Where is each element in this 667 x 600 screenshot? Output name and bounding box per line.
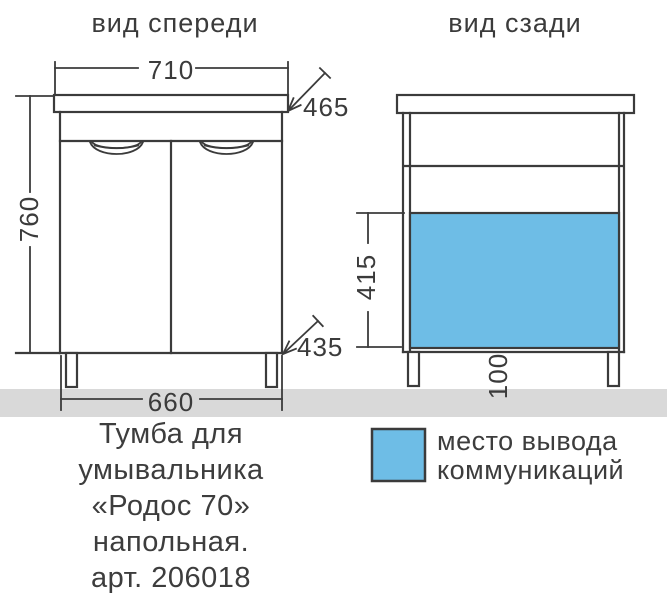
product-caption: Тумба для умывальника «Родос 70» напольн…	[30, 416, 312, 596]
back-countertop	[397, 95, 634, 113]
floor-band	[0, 389, 667, 417]
door-left-handle-icon	[90, 142, 143, 154]
caption-line: умывальника	[30, 452, 312, 488]
back-view-title: вид сзади	[400, 8, 630, 39]
front-view-title: вид спереди	[60, 8, 290, 39]
door-right-handle-icon	[200, 142, 253, 154]
caption-line: Тумба для	[30, 416, 312, 452]
front-countertop	[54, 95, 288, 112]
product-dimensions-diagram: вид спереди вид сзади 710 465 760 435 66…	[0, 0, 667, 600]
caption-line: «Родос 70»	[30, 488, 312, 524]
front-right-leg	[266, 353, 277, 387]
dim-bottom-width: 660	[137, 387, 205, 418]
front-view-drawing	[16, 95, 288, 387]
legend-line: место вывода	[437, 427, 624, 456]
dim-bottom-depth: 435	[297, 332, 343, 363]
dim-top-depth: 465	[303, 92, 349, 123]
dim-top-width: 710	[137, 55, 205, 86]
legend-swatch	[372, 429, 425, 481]
dim-cutout-bottom-offset: 100	[485, 346, 511, 406]
front-left-leg	[66, 353, 77, 387]
legend-label: место вывода коммуникаций	[437, 427, 624, 485]
back-right-leg	[608, 352, 619, 386]
caption-line: арт. 206018	[30, 560, 312, 596]
legend-line: коммуникаций	[437, 456, 624, 485]
back-left-leg	[408, 352, 419, 386]
dim-cutout-height: 415	[353, 244, 379, 310]
communications-cutout-area	[410, 213, 619, 348]
dim-height: 760	[16, 188, 42, 250]
back-view-drawing	[397, 95, 634, 386]
caption-line: напольная.	[30, 524, 312, 560]
